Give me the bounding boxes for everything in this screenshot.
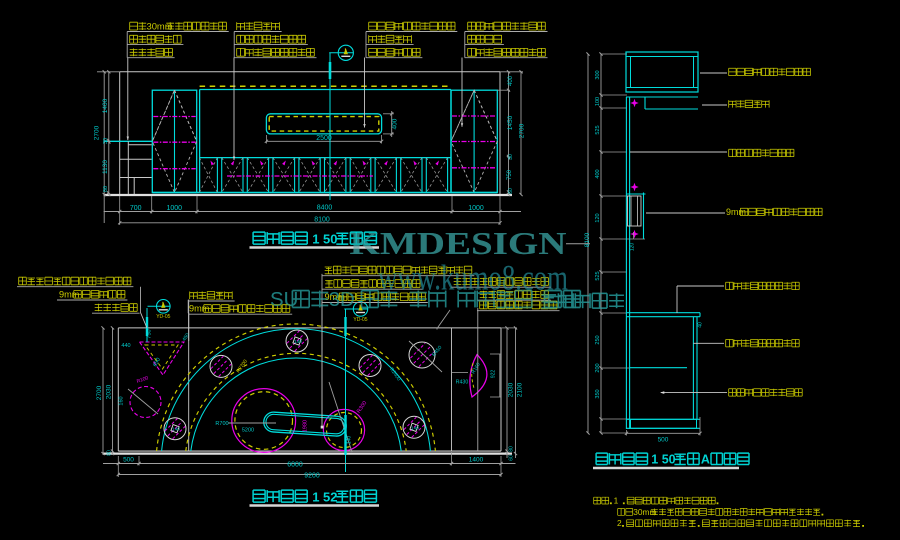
svg-text:40: 40 — [698, 322, 704, 328]
svg-text:8100: 8100 — [584, 232, 591, 247]
svg-text:140: 140 — [172, 427, 180, 432]
svg-text:60: 60 — [508, 455, 514, 461]
svg-text:1: 1 — [614, 496, 619, 506]
svg-text:922: 922 — [491, 370, 497, 379]
svg-text:www.kumo8.com: www.kumo8.com — [378, 258, 568, 298]
svg-text:400: 400 — [392, 118, 399, 129]
svg-text:2700: 2700 — [96, 385, 103, 400]
svg-text:350: 350 — [595, 389, 601, 398]
svg-text:80: 80 — [103, 186, 109, 192]
svg-text:100: 100 — [595, 97, 601, 106]
svg-text:KMDESIGN: KMDESIGN — [350, 226, 567, 261]
svg-text:1400: 1400 — [102, 98, 109, 113]
svg-text:2700: 2700 — [94, 125, 101, 140]
svg-text:525: 525 — [595, 271, 601, 280]
svg-text:5200: 5200 — [242, 428, 254, 434]
svg-text:400: 400 — [508, 75, 514, 86]
svg-text:750: 750 — [507, 169, 513, 180]
svg-text:1980: 1980 — [303, 420, 309, 432]
svg-text:A: A — [701, 453, 710, 467]
svg-text:400: 400 — [595, 169, 601, 178]
svg-text:60: 60 — [508, 188, 514, 194]
svg-text:R300: R300 — [356, 400, 368, 414]
svg-text:525: 525 — [595, 125, 601, 134]
svg-text:2100: 2100 — [516, 382, 523, 397]
svg-text:120: 120 — [630, 243, 636, 252]
svg-text:500: 500 — [658, 437, 669, 444]
svg-text:120: 120 — [595, 213, 601, 222]
svg-text:R450: R450 — [431, 345, 443, 358]
svg-text:500: 500 — [123, 457, 134, 464]
svg-text:140: 140 — [294, 339, 302, 344]
svg-text:30: 30 — [103, 138, 109, 144]
svg-text:1 50: 1 50 — [651, 453, 675, 467]
svg-text:80: 80 — [508, 446, 514, 452]
svg-text:650: 650 — [152, 357, 162, 368]
svg-text:30: 30 — [508, 154, 514, 160]
svg-text:R2700: R2700 — [235, 358, 248, 374]
svg-text:8400: 8400 — [317, 205, 333, 212]
svg-text:1000: 1000 — [167, 205, 183, 212]
svg-text:9200: 9200 — [304, 473, 320, 480]
svg-text:1450: 1450 — [507, 115, 514, 130]
svg-text:1130: 1130 — [102, 160, 109, 174]
svg-text:YD-05: YD-05 — [353, 317, 367, 323]
svg-text:YD-05: YD-05 — [156, 314, 170, 320]
svg-text:2030: 2030 — [507, 382, 514, 397]
svg-text:R430: R430 — [456, 380, 469, 386]
svg-text:300: 300 — [595, 70, 601, 79]
svg-text:R700: R700 — [215, 421, 228, 427]
svg-text:200: 200 — [595, 363, 601, 372]
svg-text:8100: 8100 — [314, 217, 330, 224]
svg-text:1 52: 1 52 — [312, 490, 337, 505]
svg-text:6000: 6000 — [287, 462, 303, 469]
svg-text:1000: 1000 — [468, 205, 484, 212]
svg-text:140: 140 — [347, 436, 353, 445]
svg-text:160: 160 — [119, 396, 125, 405]
svg-text:250: 250 — [595, 335, 601, 344]
svg-text:440: 440 — [121, 343, 130, 349]
svg-text:R100: R100 — [136, 375, 149, 385]
svg-text:2: 2 — [617, 518, 622, 528]
svg-text:1400: 1400 — [469, 457, 484, 464]
svg-text:2030: 2030 — [106, 384, 113, 399]
svg-text:450: 450 — [181, 332, 191, 342]
svg-text:80: 80 — [107, 450, 113, 456]
svg-text:1 50: 1 50 — [312, 232, 337, 247]
svg-text:2700: 2700 — [519, 123, 526, 138]
svg-text:140: 140 — [411, 425, 419, 430]
svg-text:700: 700 — [130, 205, 142, 212]
svg-text:3D: 3D — [329, 289, 355, 311]
